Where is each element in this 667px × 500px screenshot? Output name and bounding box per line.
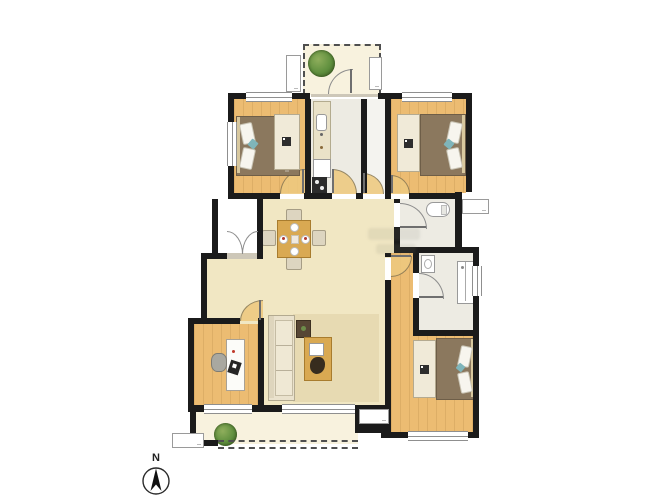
- wall: [188, 405, 204, 412]
- coffee-table: [304, 337, 332, 381]
- food-dot: [304, 237, 307, 240]
- door-leaf: [391, 175, 393, 193]
- wall: [385, 193, 391, 199]
- sofa-back: [269, 316, 274, 398]
- burner: [320, 186, 324, 190]
- laptop-screen: [232, 363, 237, 368]
- dining-table: [277, 220, 311, 258]
- desk-dot: [232, 350, 235, 353]
- wall: [455, 192, 462, 253]
- dining-chair: [262, 230, 276, 246]
- toilet-tank: [441, 205, 447, 215]
- sofa: [268, 315, 295, 401]
- wall: [356, 193, 363, 199]
- dining-chair: [312, 230, 326, 246]
- ac-unit: [359, 409, 389, 424]
- wardrobe: [274, 114, 300, 170]
- window: [204, 404, 252, 414]
- balcony-threshold: [311, 94, 378, 97]
- screenshot: N: [0, 0, 667, 500]
- wall: [413, 330, 479, 336]
- wall: [413, 253, 419, 273]
- wall: [188, 318, 194, 412]
- wall: [468, 432, 479, 438]
- wall: [381, 432, 408, 438]
- food-dot: [282, 237, 285, 240]
- faucet: [320, 146, 323, 149]
- laptop: [227, 360, 241, 376]
- sofa-cushions: [275, 320, 293, 396]
- ac-unit: [462, 199, 489, 214]
- double-bed: [436, 338, 475, 400]
- double-bed: [420, 114, 466, 176]
- wall: [201, 253, 207, 318]
- window: [246, 92, 292, 102]
- window: [472, 266, 482, 296]
- kitchen-counter: [313, 101, 331, 161]
- door-leaf: [419, 296, 443, 298]
- kitchen-cabinet: [313, 159, 331, 178]
- wardrobe-handle: [282, 137, 291, 146]
- north-label: N: [138, 452, 174, 464]
- wall: [305, 99, 311, 193]
- door-leaf: [332, 169, 334, 193]
- wardrobe-handle: [404, 139, 413, 148]
- wall: [188, 318, 240, 324]
- wall: [466, 93, 472, 192]
- wall: [212, 199, 218, 253]
- toilet: [426, 202, 450, 217]
- stove: [312, 177, 327, 193]
- window: [408, 431, 468, 441]
- door-leaf: [350, 69, 352, 93]
- shower-head: [461, 266, 464, 269]
- door-leaf: [259, 300, 261, 320]
- side-table-plant: [301, 326, 306, 331]
- kitchen-sink: [316, 114, 327, 131]
- dining-chair: [286, 257, 302, 270]
- door-leaf: [363, 173, 365, 193]
- pillow: [446, 147, 463, 170]
- window: [402, 92, 452, 102]
- entry-door-left-swing: [227, 231, 243, 254]
- watermark: [368, 228, 420, 240]
- ac-unit: [172, 433, 204, 448]
- watermark: [376, 244, 416, 254]
- plate: [290, 247, 299, 256]
- floor-plan: N: [0, 0, 667, 500]
- shower-door: [465, 262, 466, 301]
- wall: [252, 405, 282, 412]
- ac-unit: [369, 57, 382, 90]
- window: [227, 122, 237, 166]
- wall: [304, 193, 332, 199]
- side-table: [296, 320, 311, 338]
- balcony-sliding-door: [282, 404, 355, 414]
- basin-bowl: [424, 259, 432, 269]
- tray: [309, 343, 324, 356]
- wardrobe-handle: [420, 365, 429, 374]
- pillow: [239, 147, 256, 170]
- door-leaf: [391, 255, 411, 257]
- wardrobe: [413, 340, 436, 398]
- ac-unit: [286, 55, 301, 92]
- entry-door-right-swing: [242, 231, 258, 254]
- centerpiece: [291, 235, 299, 244]
- balcony-open-edge: [218, 440, 358, 449]
- plate: [290, 223, 299, 232]
- potted-plant: [308, 50, 335, 77]
- desk: [226, 339, 245, 391]
- north-arrow-icon: [141, 466, 171, 496]
- wardrobe: [397, 114, 420, 172]
- faucet: [320, 133, 323, 136]
- table-plant: [310, 357, 325, 374]
- washbasin: [421, 255, 435, 273]
- wall: [228, 193, 280, 199]
- desk-chair: [211, 353, 227, 372]
- wall: [258, 318, 264, 408]
- compass: N: [138, 452, 174, 500]
- burner: [315, 180, 319, 184]
- door-leaf: [302, 169, 304, 193]
